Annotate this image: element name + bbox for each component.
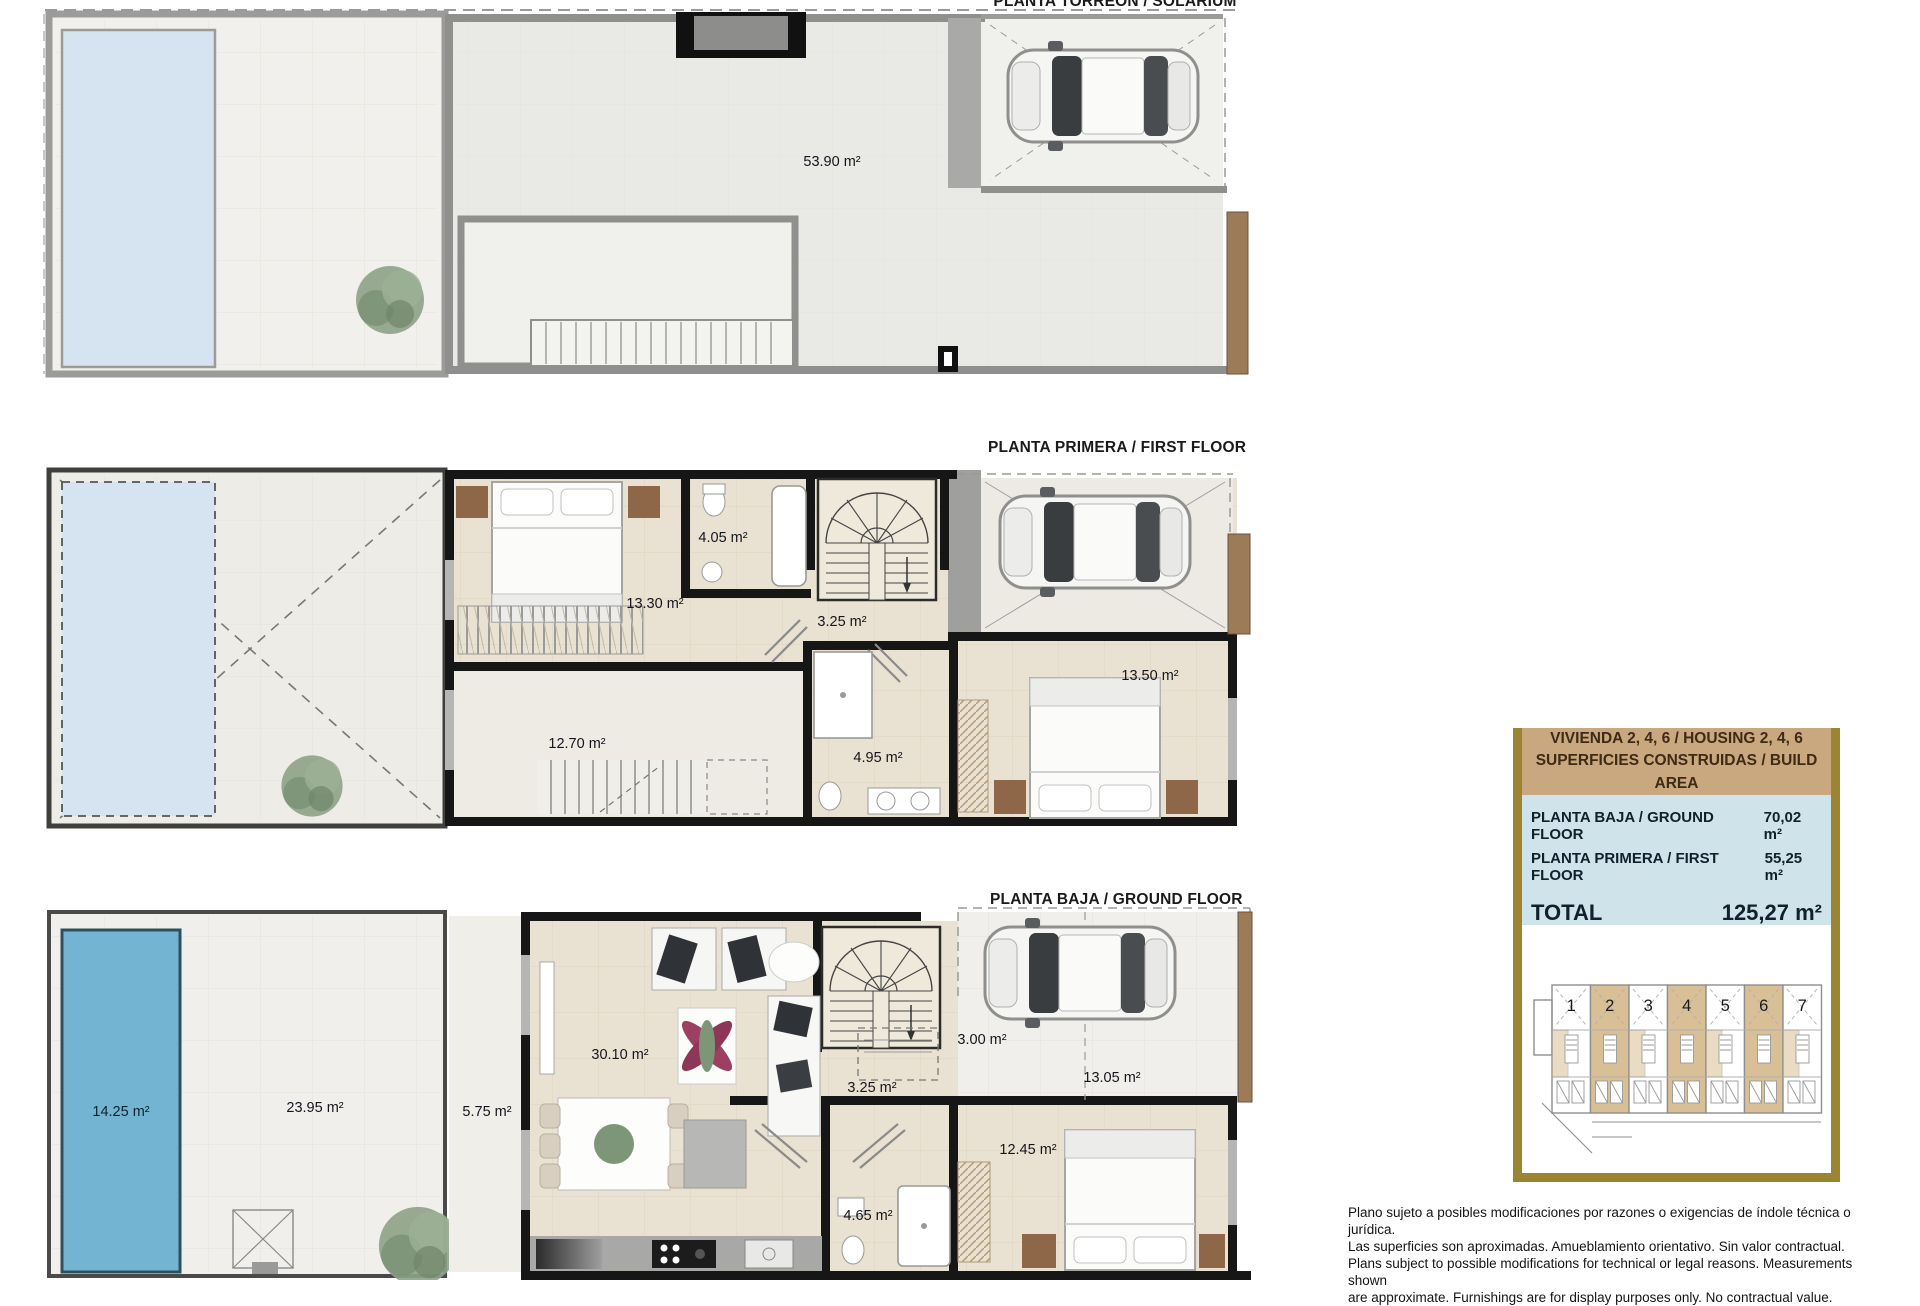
tree xyxy=(356,266,424,334)
plan-title-first-floor: PLANTA PRIMERA / FIRST FLOOR xyxy=(988,439,1240,457)
room-area-label: 4.95 m² xyxy=(853,750,902,766)
plan-ground-floor: 14.25 m² 23.95 m² 5.75 m² 30.10 m² 3.25 … xyxy=(49,908,1252,1280)
unit-number: 7 xyxy=(1798,997,1807,1015)
disclaimer-line: Las superficies son aproximadas. Amuebla… xyxy=(1348,1238,1882,1255)
area-row-ground: PLANTA BAJA / GROUND FLOOR 70,02 m² xyxy=(1531,809,1822,843)
panel-title-surfaces: SUPERFICIES CONSTRUIDAS / BUILD AREA xyxy=(1522,750,1831,795)
plan-first-floor: 4.05 m² 13.30 m² 3.25 m² 13.50 m² 12.70 … xyxy=(49,470,1250,826)
staircase xyxy=(822,927,940,1048)
area-row-label: PLANTA PRIMERA / FIRST FLOOR xyxy=(1531,850,1765,884)
wardrobe xyxy=(958,1162,990,1262)
car-top-view xyxy=(985,918,1175,1028)
disclaimer-line: Plano sujeto a posibles modificaciones p… xyxy=(1348,1204,1882,1238)
pool xyxy=(62,930,180,1272)
bed xyxy=(1065,1130,1195,1270)
nightstand xyxy=(1022,1234,1056,1268)
sink xyxy=(702,562,722,582)
disclaimer-line: Plans subject to possible modifications … xyxy=(1348,1255,1882,1289)
unit-number: 3 xyxy=(1644,997,1653,1015)
bed xyxy=(1030,678,1160,818)
disclaimer: Plano sujeto a posibles modificaciones p… xyxy=(1348,1204,1882,1306)
room-area-label: 4.65 m² xyxy=(843,1208,892,1224)
toilet xyxy=(819,782,841,810)
kitchen-island xyxy=(684,1120,746,1188)
area-row-value: 70,02 m² xyxy=(1764,809,1822,843)
plan-title-solarium: PLANTA TORREÓN / SOLARIUM xyxy=(988,0,1242,11)
room-area-label: 3.25 m² xyxy=(817,614,866,630)
sideboard xyxy=(540,962,554,1074)
solarium-pool xyxy=(62,30,215,367)
wood-strip xyxy=(1228,534,1250,634)
nightstand xyxy=(456,486,488,518)
nightstand xyxy=(628,486,660,518)
car-top-view xyxy=(1000,487,1190,597)
total-value: 125,27 m² xyxy=(1722,900,1822,926)
area-total-row: TOTAL 125,27 m² xyxy=(1531,900,1822,926)
car-top-view xyxy=(1008,41,1198,151)
rug xyxy=(769,942,819,982)
tree xyxy=(281,755,342,816)
room-area-label: 23.95 m² xyxy=(286,1100,343,1116)
unit-number: 6 xyxy=(1759,997,1768,1015)
room-area-label: 30.10 m² xyxy=(591,1047,648,1063)
staircase xyxy=(818,479,936,600)
panel-header: VIVIENDA 2, 4, 6 / HOUSING 2, 4, 6 SUPER… xyxy=(1522,728,1831,795)
wood-strip xyxy=(1227,212,1248,374)
room-area-label: 3.00 m² xyxy=(957,1032,1006,1048)
bed xyxy=(492,482,622,622)
room-area-label: 13.30 m² xyxy=(626,596,683,612)
nightstand xyxy=(994,780,1026,814)
plan-solarium: 53.90 m² xyxy=(44,10,1248,374)
wardrobe xyxy=(458,606,643,654)
unit-number: 5 xyxy=(1721,997,1730,1015)
bathtub xyxy=(772,486,806,586)
kitchen-counter xyxy=(530,1236,822,1271)
room-area-label: 5.75 m² xyxy=(462,1104,511,1120)
room-area-label: 13.05 m² xyxy=(1083,1070,1140,1086)
room-area-label: 4.05 m² xyxy=(698,530,747,546)
wood-strip xyxy=(1238,912,1252,1102)
panel-areas: PLANTA BAJA / GROUND FLOOR 70,02 m² PLAN… xyxy=(1522,795,1831,925)
total-label: TOTAL xyxy=(1531,900,1602,926)
room-area-label: 13.50 m² xyxy=(1121,668,1178,684)
toilet xyxy=(842,1236,864,1264)
room-area-label: 53.90 m² xyxy=(803,154,860,170)
room-area-label: 12.70 m² xyxy=(548,736,605,752)
area-row-value: 55,25 m² xyxy=(1765,850,1822,884)
room-area-label: 3.25 m² xyxy=(847,1080,896,1096)
stairs xyxy=(531,320,793,366)
dining-table xyxy=(540,1098,688,1190)
area-row-label: PLANTA BAJA / GROUND FLOOR xyxy=(1531,809,1764,843)
site-plan: 1 2 3 4 5 6 7 xyxy=(1522,925,1831,1173)
disclaimer-line: are approximate. Furnishings are for dis… xyxy=(1348,1289,1882,1306)
panel-title-housing: VIVIENDA 2, 4, 6 / HOUSING 2, 4, 6 xyxy=(1522,728,1831,750)
wardrobe xyxy=(958,700,988,812)
room-area-label: 14.25 m² xyxy=(92,1104,149,1120)
sofa xyxy=(768,996,820,1136)
site-plan-diagram: 1 2 3 4 5 6 7 xyxy=(1522,925,1831,1173)
nightstand xyxy=(1199,1234,1225,1268)
plan-title-ground-floor: PLANTA BAJA / GROUND FLOOR xyxy=(990,891,1222,909)
nightstand xyxy=(1166,780,1198,814)
unit-number: 1 xyxy=(1567,997,1576,1015)
unit-number: 4 xyxy=(1682,997,1691,1015)
room-area-label: 12.45 m² xyxy=(999,1142,1056,1158)
unit-number: 2 xyxy=(1605,997,1614,1015)
area-row-first: PLANTA PRIMERA / FIRST FLOOR 55,25 m² xyxy=(1531,850,1822,884)
build-area-panel: VIVIENDA 2, 4, 6 / HOUSING 2, 4, 6 SUPER… xyxy=(1513,728,1840,1182)
plant xyxy=(676,1008,738,1084)
stairs xyxy=(537,760,707,814)
first-pool-void xyxy=(62,482,215,816)
